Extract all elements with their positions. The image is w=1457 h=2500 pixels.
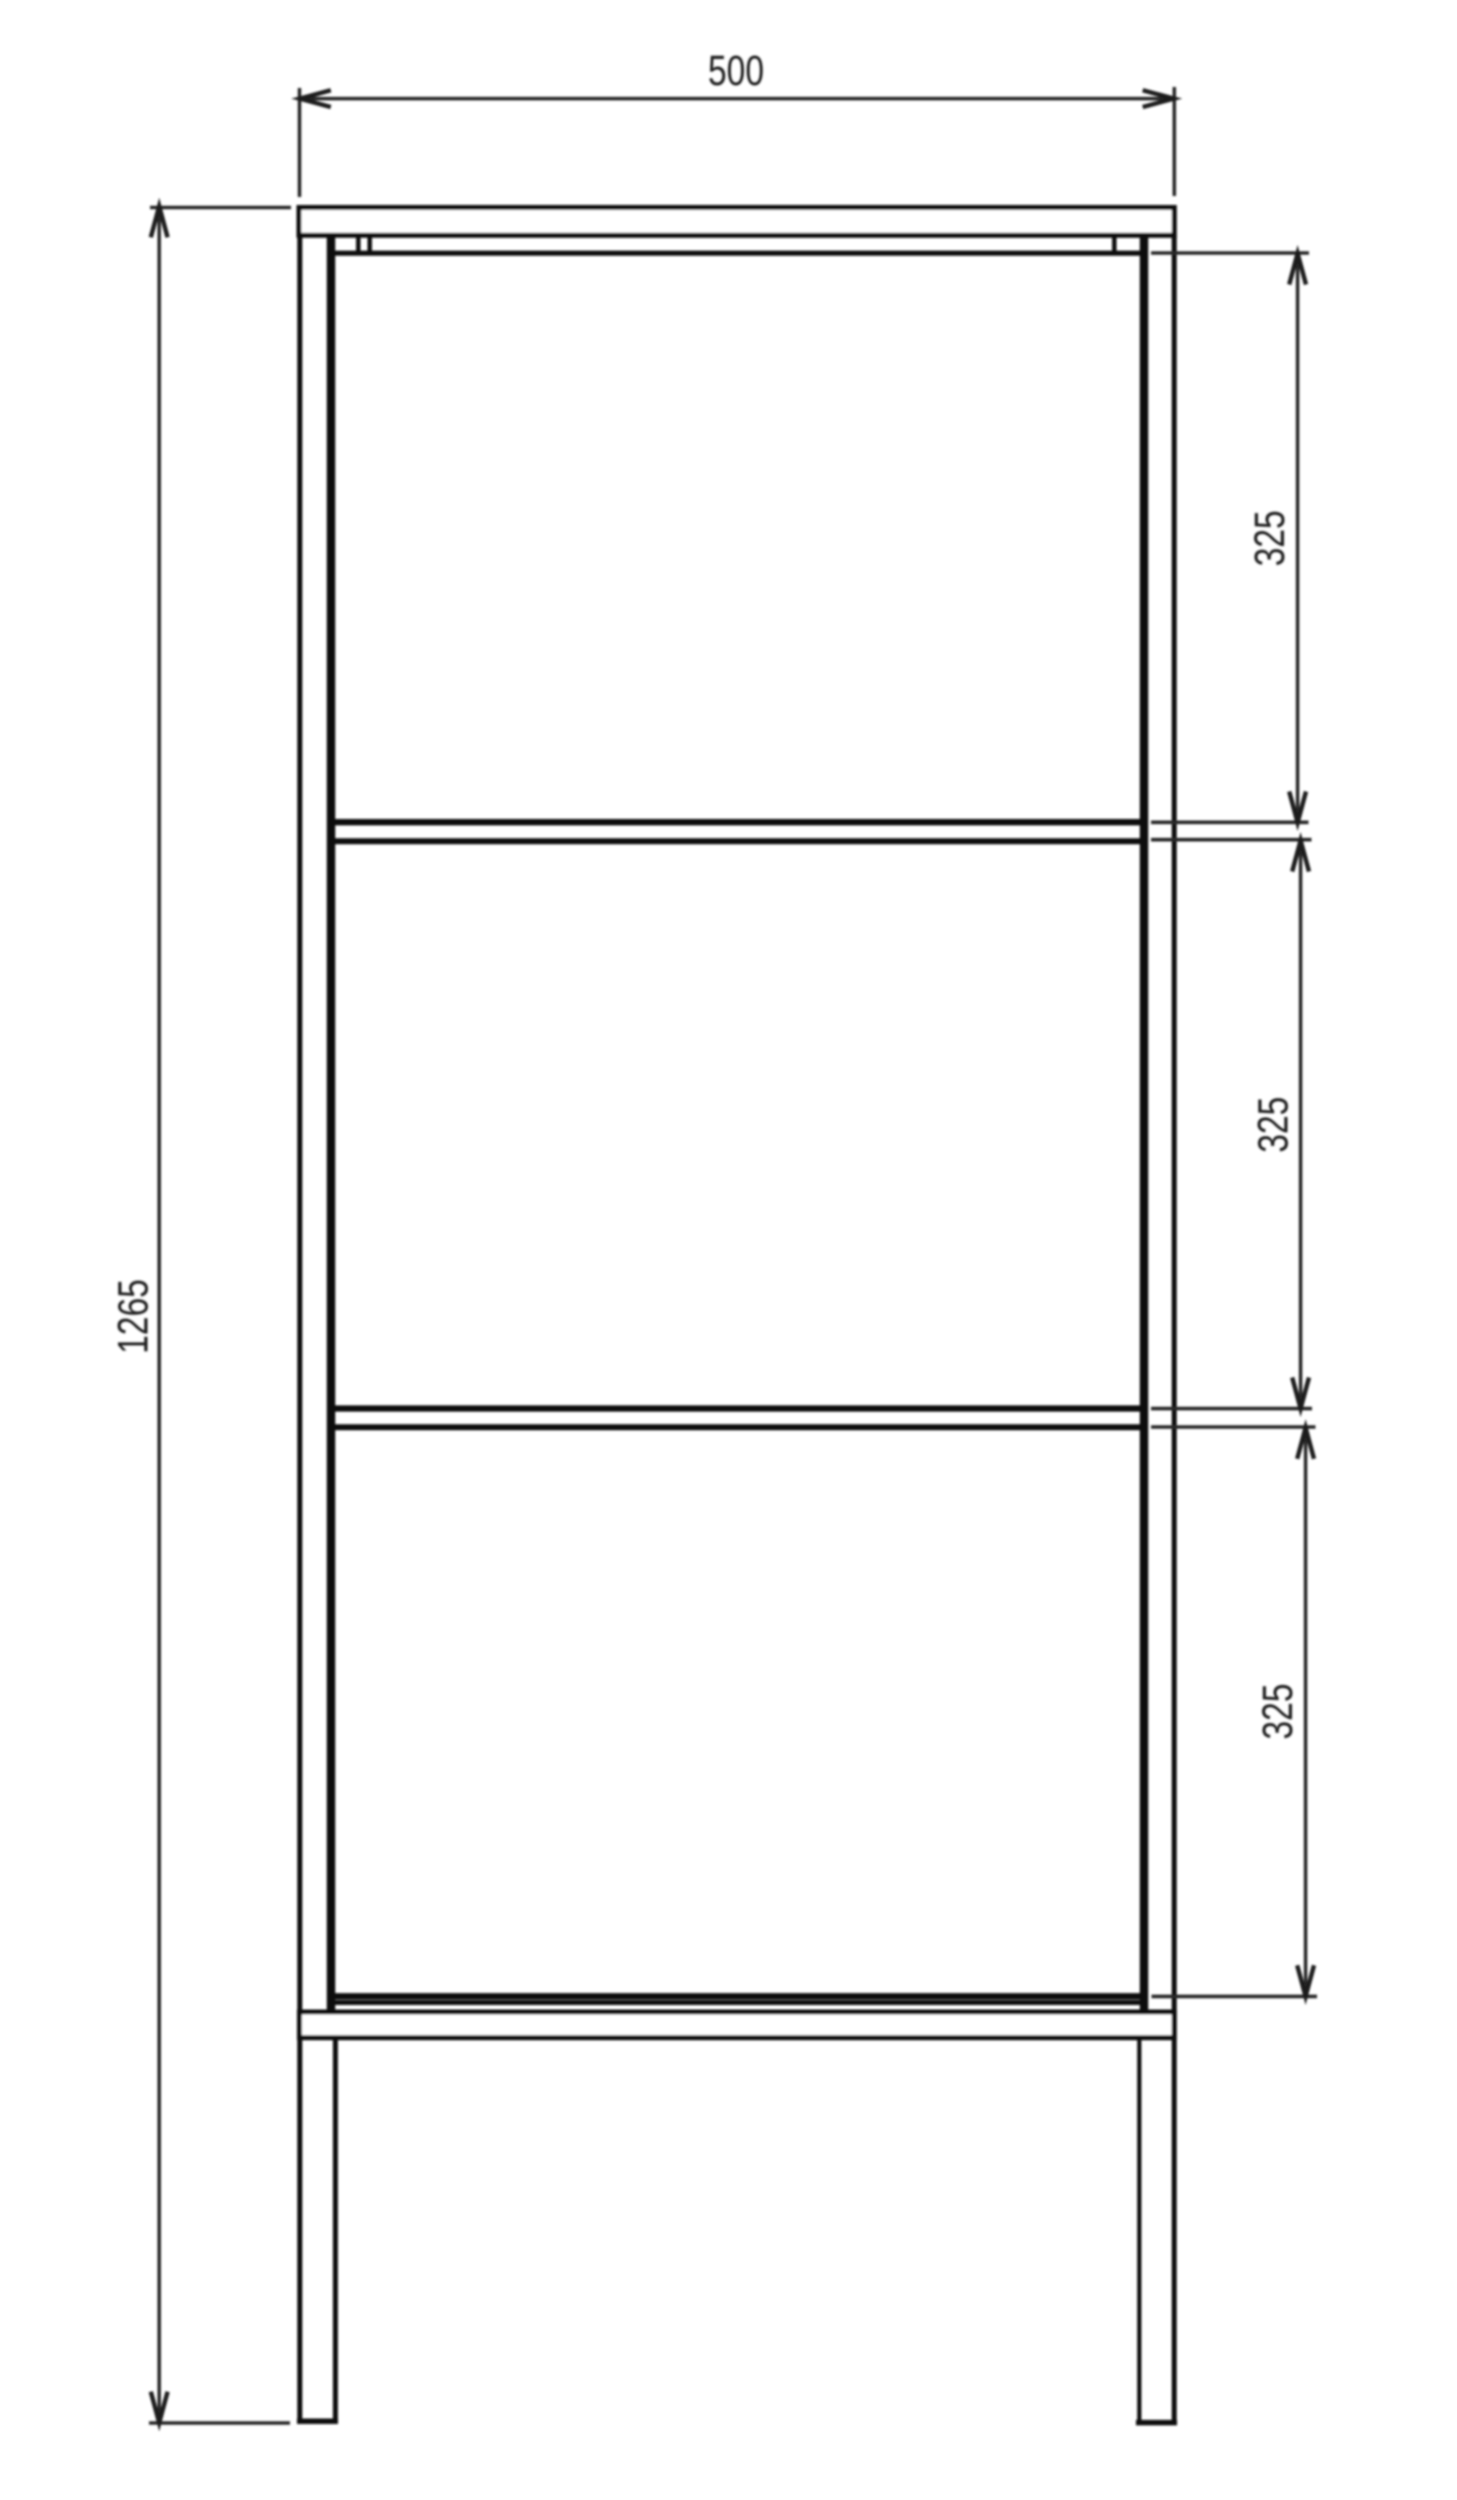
svg-text:1265: 1265 — [110, 1279, 158, 1354]
svg-text:325: 325 — [1246, 510, 1294, 566]
svg-text:500: 500 — [708, 47, 764, 95]
svg-text:325: 325 — [1254, 1684, 1302, 1740]
svg-text:325: 325 — [1249, 1097, 1297, 1153]
